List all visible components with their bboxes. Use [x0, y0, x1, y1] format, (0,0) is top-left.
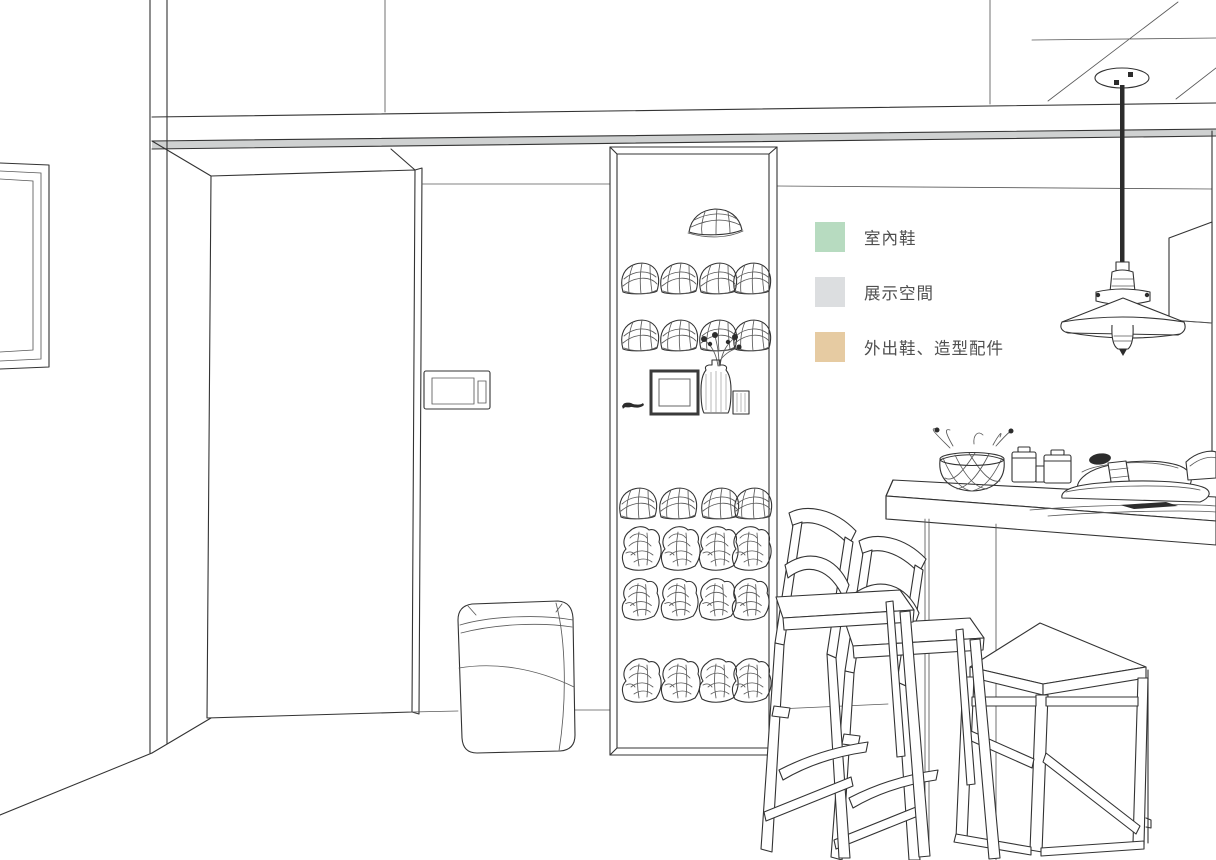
legend-swatch-display-space [815, 277, 845, 307]
legend-item-outdoor-shoes-accessories: 外出鞋、造型配件 [815, 332, 1004, 362]
wall-picture-frame [0, 163, 49, 369]
legend-label-display-space: 展示空間 [864, 280, 934, 304]
shoe-cabinet [610, 147, 777, 755]
legend-swatch-indoor-shoes [815, 222, 845, 252]
legend-item-display-space: 展示空間 [815, 277, 934, 307]
ceiling-beam [152, 103, 1216, 149]
counter-jars [1012, 447, 1071, 483]
line-drawing [0, 0, 1216, 860]
left-wall [0, 0, 211, 815]
counter-basket [933, 428, 1013, 492]
pendant-lamp [1061, 68, 1185, 356]
pouf-seat [458, 601, 575, 753]
legend-item-indoor-shoes: 室內鞋 [815, 222, 917, 252]
cabinet-frame [610, 147, 777, 755]
ceiling [385, 0, 1216, 112]
upper-wall-cabinet [1169, 222, 1212, 323]
legend-swatch-outdoor-shoes-accessories [815, 332, 845, 362]
interior-rendering: 室內鞋 展示空間 外出鞋、造型配件 [0, 0, 1216, 860]
legend-label-indoor-shoes: 室內鞋 [864, 225, 917, 249]
legend-label-outdoor-shoes-accessories: 外出鞋、造型配件 [864, 335, 1004, 359]
intercom-panel [424, 371, 490, 409]
